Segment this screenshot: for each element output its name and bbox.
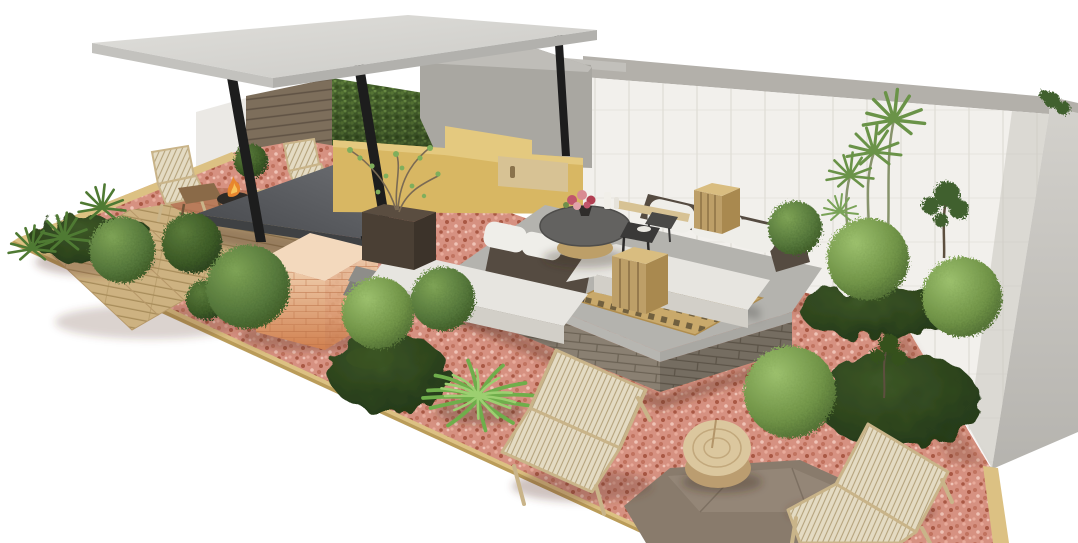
candle-small — [614, 197, 619, 209]
planter-side — [414, 212, 436, 270]
candle — [604, 192, 611, 209]
planter-front — [362, 212, 414, 270]
rattan-lantern-large — [612, 247, 668, 314]
garden-3d-render — [0, 0, 1078, 543]
rattan-lantern-small — [694, 183, 740, 234]
cabinet-handle — [510, 166, 515, 178]
garden-render-canvas — [0, 0, 1078, 543]
